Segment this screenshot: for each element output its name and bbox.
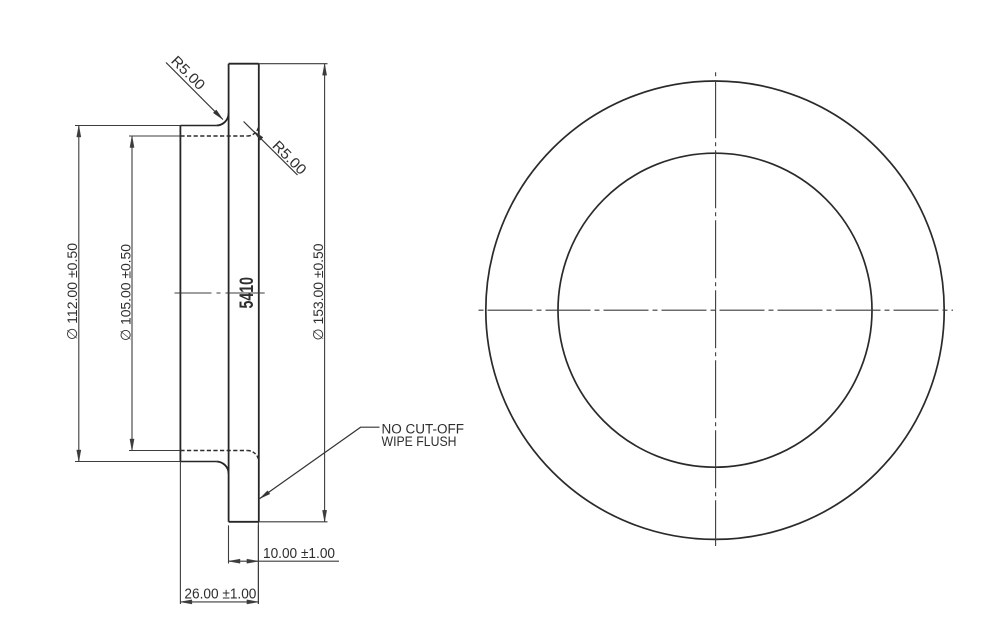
svg-text:5410: 5410 [237, 277, 258, 309]
svg-text:26.00 ±1.00: 26.00 ±1.00 [184, 587, 256, 603]
svg-text:WIPE FLUSH: WIPE FLUSH [382, 434, 457, 449]
svg-text:∅ 105.00 ±0.50: ∅ 105.00 ±0.50 [117, 244, 133, 341]
svg-text:∅ 112.00 ±0.50: ∅ 112.00 ±0.50 [64, 243, 80, 340]
svg-text:10.00 ±1.00: 10.00 ±1.00 [263, 546, 335, 562]
svg-text:∅ 153.00 ±0.50: ∅ 153.00 ±0.50 [310, 243, 326, 340]
